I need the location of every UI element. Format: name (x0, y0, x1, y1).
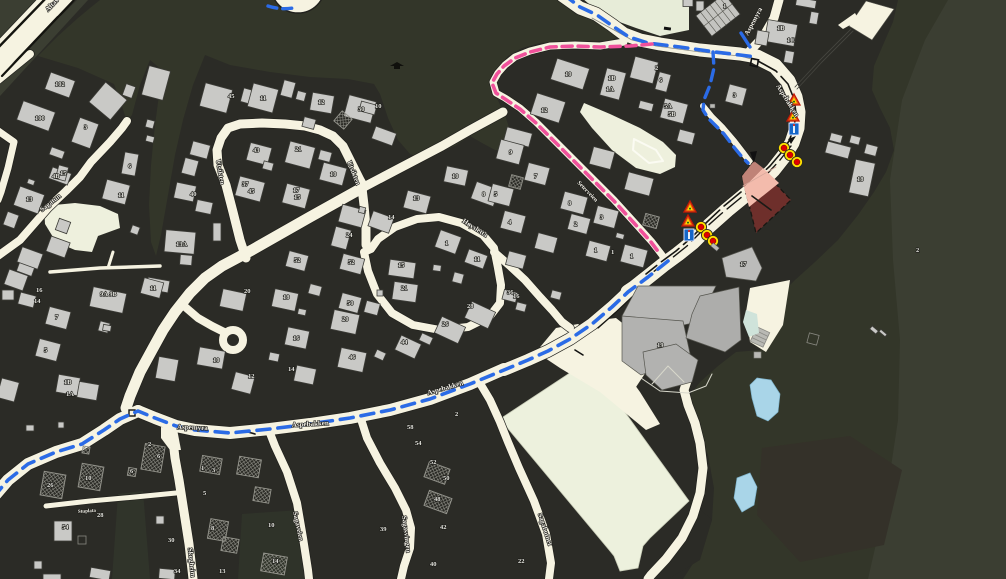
svg-text:17: 17 (740, 261, 747, 268)
svg-text:48: 48 (434, 496, 441, 503)
svg-text:50: 50 (347, 300, 354, 307)
svg-text:45: 45 (248, 188, 255, 195)
svg-text:1A: 1A (606, 86, 614, 93)
svg-text:11: 11 (118, 192, 124, 199)
svg-text:102: 102 (55, 81, 65, 88)
svg-text:21: 21 (295, 146, 302, 153)
svg-text:40: 40 (430, 561, 437, 568)
svg-text:21: 21 (401, 285, 408, 292)
svg-text:12: 12 (318, 99, 325, 106)
svg-text:39: 39 (380, 526, 387, 533)
svg-text:14: 14 (34, 298, 41, 305)
svg-text:1C: 1C (787, 37, 795, 44)
svg-text:2: 2 (148, 441, 151, 448)
svg-text:14: 14 (272, 558, 279, 565)
svg-text:14: 14 (288, 366, 295, 373)
svg-text:1B: 1B (608, 75, 616, 82)
svg-text:2: 2 (655, 65, 658, 72)
svg-text:1: 1 (201, 465, 204, 472)
svg-text:43: 43 (253, 147, 260, 154)
svg-text:11: 11 (474, 256, 480, 263)
svg-text:15: 15 (398, 262, 405, 269)
svg-text:2: 2 (916, 247, 919, 254)
svg-text:34: 34 (174, 568, 181, 575)
svg-text:2: 2 (574, 221, 577, 228)
svg-text:14: 14 (388, 214, 395, 221)
svg-text:50: 50 (443, 475, 450, 482)
svg-text:1B: 1B (64, 379, 72, 386)
svg-text:4B: 4B (52, 173, 60, 180)
svg-text:5A: 5A (664, 103, 672, 110)
svg-text:18: 18 (857, 176, 864, 183)
svg-text:54: 54 (415, 440, 422, 447)
svg-text:1A: 1A (66, 391, 74, 398)
svg-text:100: 100 (35, 115, 45, 122)
svg-text:12: 12 (248, 373, 255, 380)
svg-text:1: 1 (611, 249, 614, 256)
svg-text:17: 17 (293, 187, 300, 194)
svg-text:13: 13 (26, 196, 33, 203)
svg-text:26: 26 (47, 482, 54, 489)
svg-text:1: 1 (445, 240, 448, 247)
svg-text:19: 19 (657, 342, 664, 349)
svg-text:54: 54 (62, 524, 69, 531)
svg-text:52: 52 (430, 459, 437, 466)
svg-text:46: 46 (349, 354, 356, 361)
svg-text:10: 10 (375, 103, 382, 110)
svg-text:30: 30 (168, 537, 175, 544)
svg-text:Aspemyra: Aspemyra (177, 423, 208, 432)
svg-text:10: 10 (268, 522, 275, 529)
svg-text:11: 11 (150, 285, 156, 292)
svg-text:13A: 13A (176, 241, 188, 248)
svg-text:52: 52 (294, 257, 301, 264)
svg-text:10: 10 (452, 173, 459, 180)
svg-text:11: 11 (260, 95, 266, 102)
svg-text:42: 42 (440, 524, 447, 531)
svg-text:52: 52 (348, 259, 355, 266)
svg-text:13: 13 (219, 568, 226, 575)
svg-text:10: 10 (565, 71, 572, 78)
svg-text:16: 16 (36, 287, 43, 294)
svg-text:24: 24 (346, 232, 353, 239)
svg-text:15: 15 (294, 194, 301, 201)
svg-text:40: 40 (190, 191, 197, 198)
svg-text:58: 58 (407, 424, 414, 431)
svg-text:10: 10 (330, 171, 337, 178)
svg-text:26: 26 (442, 321, 449, 328)
svg-text:1B: 1B (777, 25, 785, 32)
svg-text:13: 13 (413, 195, 420, 202)
svg-text:1: 1 (594, 247, 597, 254)
svg-text:30: 30 (358, 106, 365, 113)
svg-text:16: 16 (513, 293, 520, 300)
svg-text:36: 36 (507, 289, 514, 296)
svg-text:12: 12 (541, 107, 548, 114)
svg-text:20: 20 (342, 316, 349, 323)
svg-text:28: 28 (467, 303, 474, 310)
svg-text:22: 22 (518, 558, 525, 565)
svg-text:20: 20 (244, 288, 251, 295)
svg-text:5B: 5B (668, 111, 676, 118)
svg-text:45: 45 (228, 93, 235, 100)
svg-text:1: 1 (723, 3, 726, 10)
svg-text:15: 15 (60, 170, 67, 177)
svg-text:10: 10 (85, 475, 92, 482)
svg-text:2: 2 (455, 411, 458, 418)
svg-text:16: 16 (293, 335, 300, 342)
svg-text:9A 9B: 9A 9B (100, 291, 117, 298)
svg-text:37: 37 (242, 181, 249, 188)
svg-text:28: 28 (97, 512, 104, 519)
svg-text:10: 10 (213, 357, 220, 364)
svg-text:44: 44 (401, 339, 408, 346)
svg-text:18: 18 (283, 294, 290, 301)
svg-text:1: 1 (630, 253, 633, 260)
